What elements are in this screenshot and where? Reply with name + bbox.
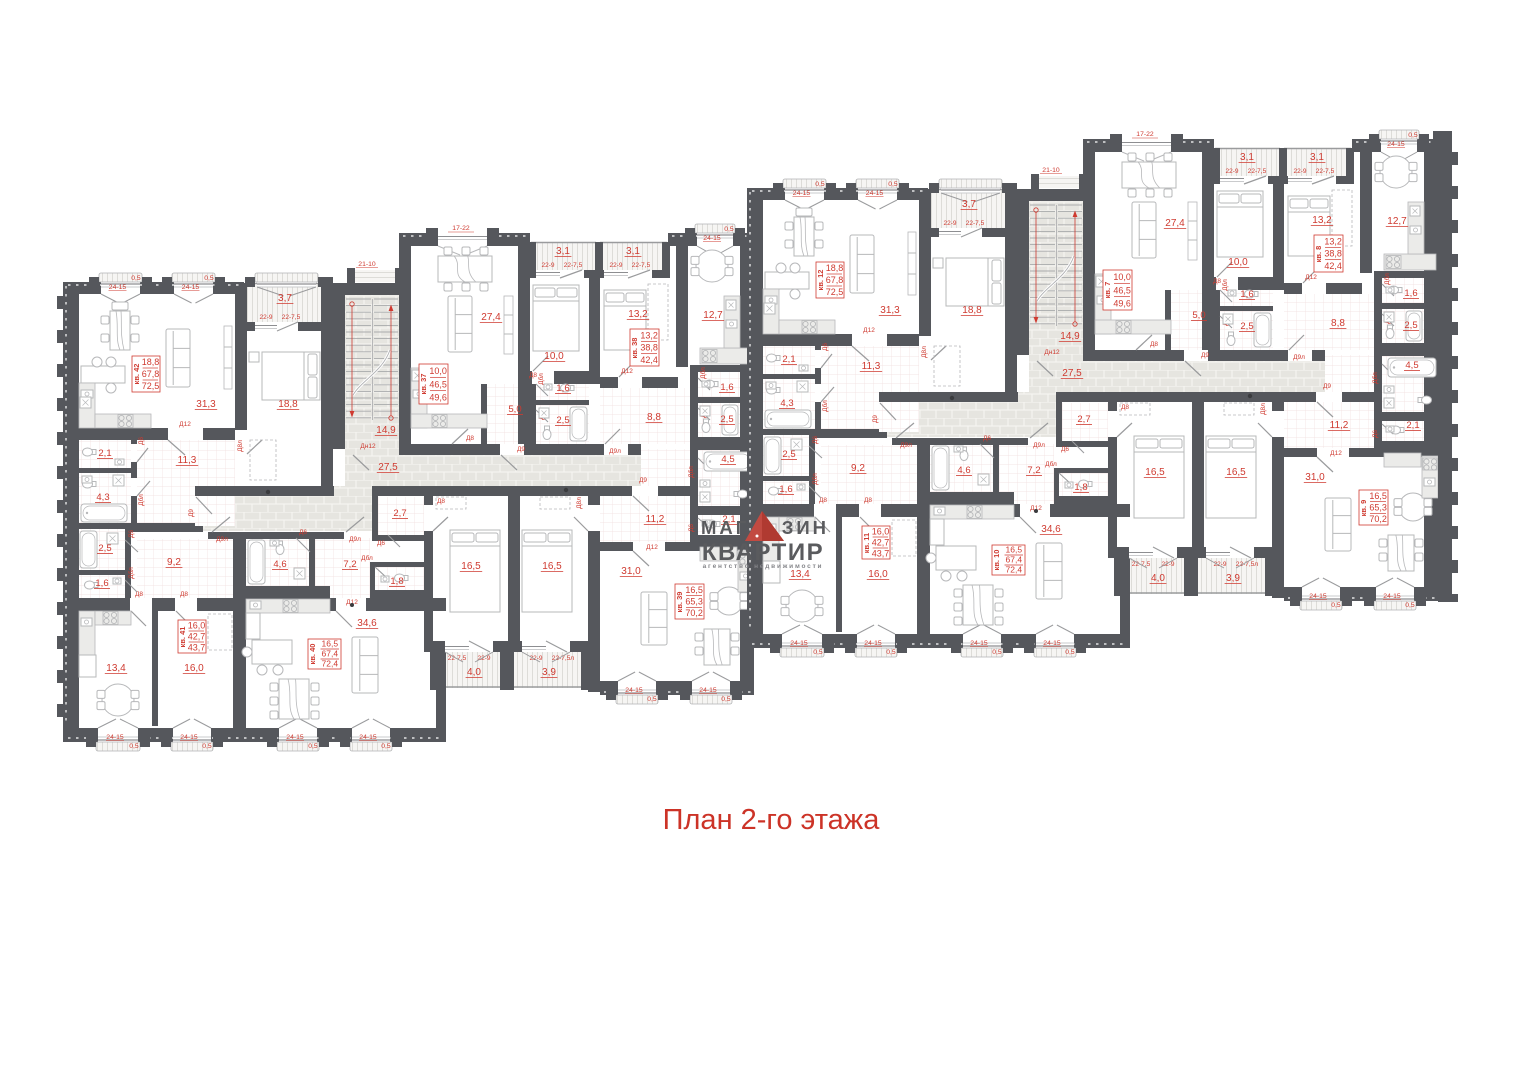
svg-text:кв. 39: кв. 39	[675, 592, 684, 613]
svg-text:24-15: 24-15	[699, 687, 717, 694]
svg-text:2,5: 2,5	[98, 543, 111, 554]
svg-text:кв. 12: кв. 12	[816, 270, 825, 291]
svg-text:кв. 38: кв. 38	[630, 338, 639, 359]
svg-text:Д9: Д9	[517, 446, 525, 453]
svg-text:0,5: 0,5	[381, 743, 391, 750]
svg-text:4,6: 4,6	[273, 559, 286, 570]
svg-text:67,4: 67,4	[322, 649, 339, 659]
svg-text:0,5: 0,5	[202, 743, 212, 750]
svg-text:кв. 40: кв. 40	[308, 644, 317, 665]
svg-text:Дбл: Дбл	[137, 494, 145, 506]
svg-text:Д12: Д12	[646, 544, 658, 551]
svg-text:31,3: 31,3	[196, 399, 216, 410]
svg-text:43,7: 43,7	[188, 642, 206, 652]
svg-text:16,5: 16,5	[461, 561, 481, 572]
svg-text:КВАРТИР: КВАРТИР	[702, 539, 824, 566]
svg-text:кв. 8: кв. 8	[1314, 246, 1323, 263]
svg-text:1,6: 1,6	[95, 578, 108, 589]
svg-text:ЗИН: ЗИН	[782, 517, 829, 538]
svg-text:22-9: 22-9	[477, 655, 490, 662]
svg-text:Д6: Д6	[377, 540, 385, 547]
svg-text:0,5: 0,5	[721, 696, 731, 703]
svg-text:0,5: 0,5	[204, 275, 214, 282]
svg-text:кв. 11: кв. 11	[862, 533, 871, 553]
svg-text:70,2: 70,2	[685, 608, 703, 618]
svg-text:Д8: Д8	[529, 372, 537, 379]
svg-text:12,7: 12,7	[703, 310, 723, 321]
svg-text:Д9л: Д9л	[349, 536, 361, 543]
svg-text:10,0: 10,0	[429, 366, 447, 376]
svg-text:5,0: 5,0	[508, 404, 521, 415]
svg-text:16,5: 16,5	[542, 561, 562, 572]
svg-text:18,8: 18,8	[278, 399, 298, 410]
svg-text:4,5: 4,5	[721, 454, 734, 465]
svg-text:2,1: 2,1	[98, 448, 111, 459]
svg-text:Д8: Д8	[180, 591, 188, 598]
svg-text:2,5: 2,5	[720, 414, 733, 425]
svg-text:Д12: Д12	[179, 421, 191, 428]
svg-text:Д9: Д9	[639, 477, 647, 484]
svg-text:кв. 37: кв. 37	[419, 374, 428, 395]
svg-text:Д8: Д8	[437, 498, 445, 505]
svg-text:кв. 10: кв. 10	[992, 550, 1001, 571]
svg-text:16,5: 16,5	[685, 585, 703, 595]
svg-text:22-9: 22-9	[609, 262, 622, 269]
svg-text:кв. 42: кв. 42	[132, 364, 141, 385]
svg-text:кв. 9: кв. 9	[1359, 500, 1368, 517]
svg-text:42,4: 42,4	[640, 355, 658, 365]
svg-text:кв. 41: кв. 41	[178, 627, 187, 648]
svg-text:Д8л: Д8л	[576, 497, 583, 509]
svg-text:16,0: 16,0	[184, 663, 204, 674]
svg-text:17-22: 17-22	[452, 225, 470, 232]
svg-text:22-9: 22-9	[529, 655, 542, 662]
svg-text:Дбл: Дбл	[361, 554, 373, 562]
svg-text:Дбл: Дбл	[699, 367, 707, 379]
svg-text:21-10: 21-10	[358, 261, 376, 268]
svg-text:24-15: 24-15	[286, 734, 304, 741]
svg-text:кв. 7: кв. 7	[1103, 282, 1112, 299]
svg-text:Д12: Д12	[621, 368, 633, 375]
svg-text:10,0: 10,0	[544, 351, 564, 362]
svg-text:22-9: 22-9	[259, 314, 272, 321]
svg-text:2,5: 2,5	[556, 415, 569, 426]
svg-text:Д6: Д6	[128, 530, 135, 538]
svg-text:16,0: 16,0	[188, 620, 206, 630]
svg-text:0,5: 0,5	[131, 275, 141, 282]
svg-text:34,6: 34,6	[357, 618, 377, 629]
svg-text:67,8: 67,8	[142, 369, 160, 379]
svg-text:13,2: 13,2	[640, 330, 658, 340]
svg-text:Д6: Д6	[138, 437, 145, 445]
svg-text:0,5: 0,5	[129, 743, 139, 750]
svg-text:27,4: 27,4	[481, 312, 501, 323]
svg-text:1,6: 1,6	[720, 382, 733, 393]
svg-text:4,0: 4,0	[467, 667, 481, 678]
svg-text:Д9л: Д9л	[216, 536, 228, 543]
svg-text:24-15: 24-15	[180, 734, 198, 741]
svg-text:11,2: 11,2	[646, 514, 665, 525]
svg-text:31,0: 31,0	[621, 566, 641, 577]
svg-text:24-15: 24-15	[182, 284, 200, 291]
svg-text:Д9: Д9	[188, 509, 195, 517]
svg-text:Д8: Д8	[466, 435, 474, 442]
svg-text:22-7,5: 22-7,5	[282, 314, 301, 321]
svg-text:24-15: 24-15	[106, 734, 124, 741]
svg-text:8,8: 8,8	[647, 412, 661, 423]
svg-text:Д8: Д8	[135, 591, 143, 598]
svg-text:22-7,5: 22-7,5	[564, 262, 583, 269]
svg-text:Дбл: Дбл	[537, 373, 545, 385]
svg-text:Д9л: Д9л	[609, 448, 621, 455]
svg-text:0,5: 0,5	[308, 743, 318, 750]
svg-text:13,4: 13,4	[106, 663, 126, 674]
svg-text:МАГ: МАГ	[701, 517, 749, 538]
svg-text:24-15: 24-15	[359, 734, 377, 741]
svg-text:18,8: 18,8	[142, 357, 160, 367]
svg-text:Дбл: Дбл	[127, 567, 135, 579]
svg-text:7,2: 7,2	[343, 559, 356, 570]
svg-text:72,4: 72,4	[322, 659, 339, 669]
svg-text:14,9: 14,9	[376, 425, 396, 436]
svg-text:24-15: 24-15	[625, 687, 643, 694]
svg-text:Дбл: Дбл	[687, 466, 695, 478]
svg-text:49,6: 49,6	[429, 393, 447, 403]
svg-text:4,3: 4,3	[96, 492, 109, 503]
svg-text:Д6: Д6	[299, 529, 307, 536]
svg-text:11,3: 11,3	[178, 455, 197, 466]
svg-text:9,2: 9,2	[167, 557, 181, 568]
svg-text:22-9: 22-9	[541, 262, 554, 269]
svg-text:22-7,5: 22-7,5	[632, 262, 651, 269]
svg-text:0,5: 0,5	[647, 696, 657, 703]
svg-text:3,1: 3,1	[626, 246, 640, 257]
svg-text:3,1: 3,1	[556, 246, 570, 257]
svg-text:27,5: 27,5	[378, 462, 398, 473]
svg-text:2,7: 2,7	[393, 508, 406, 519]
svg-text:65,3: 65,3	[685, 596, 703, 606]
svg-text:3,9: 3,9	[542, 667, 556, 678]
svg-text:42,7: 42,7	[188, 631, 206, 641]
svg-text:46,5: 46,5	[429, 379, 447, 389]
svg-text:1,6: 1,6	[556, 383, 569, 394]
svg-text:агентство недвижимости: агентство недвижимости	[703, 563, 824, 570]
svg-text:План 2-го этажа: План 2-го этажа	[663, 804, 881, 836]
svg-text:Д6: Д6	[688, 524, 695, 532]
svg-text:0,5: 0,5	[724, 226, 734, 233]
svg-text:24-15: 24-15	[703, 235, 721, 242]
svg-text:Д8л: Д8л	[237, 440, 244, 452]
svg-text:3,7: 3,7	[278, 293, 292, 304]
svg-text:1,8: 1,8	[390, 576, 403, 587]
svg-text:16,5: 16,5	[322, 639, 339, 649]
svg-text:72,5: 72,5	[142, 381, 160, 391]
svg-text:Дн12: Дн12	[360, 443, 376, 450]
svg-text:13,2: 13,2	[628, 309, 648, 320]
svg-text:38,8: 38,8	[640, 343, 658, 353]
svg-text:24-15: 24-15	[109, 284, 127, 291]
